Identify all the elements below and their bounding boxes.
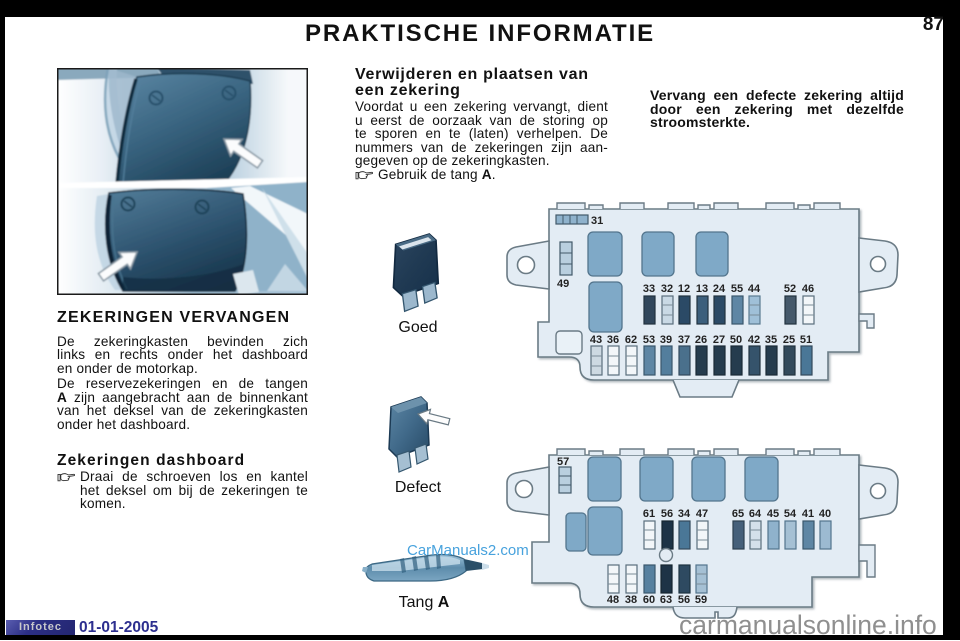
svg-text:46: 46 (802, 283, 814, 295)
svg-text:62: 62 (625, 334, 637, 346)
svg-text:60: 60 (643, 594, 655, 606)
svg-text:50: 50 (730, 334, 742, 346)
svg-text:36: 36 (607, 334, 619, 346)
svg-text:40: 40 (819, 508, 831, 520)
svg-text:13: 13 (696, 283, 708, 295)
svg-text:37: 37 (678, 334, 690, 346)
svg-text:35: 35 (765, 334, 777, 346)
svg-text:64: 64 (749, 508, 762, 520)
svg-text:12: 12 (678, 283, 690, 295)
svg-text:26: 26 (695, 334, 707, 346)
svg-text:38: 38 (625, 594, 637, 606)
svg-text:63: 63 (660, 594, 672, 606)
svg-text:55: 55 (731, 283, 743, 295)
svg-text:54: 54 (784, 508, 797, 520)
svg-text:48: 48 (607, 594, 619, 606)
svg-text:42: 42 (748, 334, 760, 346)
svg-text:49: 49 (557, 278, 569, 290)
svg-text:32: 32 (661, 283, 673, 295)
svg-text:31: 31 (591, 215, 603, 227)
svg-text:43: 43 (590, 334, 602, 346)
svg-text:25: 25 (783, 334, 795, 346)
svg-text:41: 41 (802, 508, 814, 520)
svg-text:51: 51 (800, 334, 812, 346)
svg-text:53: 53 (643, 334, 655, 346)
svg-text:56: 56 (661, 508, 673, 520)
svg-text:27: 27 (713, 334, 725, 346)
svg-text:47: 47 (696, 508, 708, 520)
svg-text:24: 24 (713, 283, 726, 295)
svg-text:56: 56 (678, 594, 690, 606)
svg-text:61: 61 (643, 508, 655, 520)
svg-text:59: 59 (695, 594, 707, 606)
svg-text:57: 57 (557, 456, 569, 468)
svg-text:33: 33 (643, 283, 655, 295)
svg-text:34: 34 (678, 508, 691, 520)
svg-text:52: 52 (784, 283, 796, 295)
svg-text:44: 44 (748, 283, 761, 295)
svg-text:45: 45 (767, 508, 779, 520)
svg-text:39: 39 (660, 334, 672, 346)
svg-text:65: 65 (732, 508, 744, 520)
